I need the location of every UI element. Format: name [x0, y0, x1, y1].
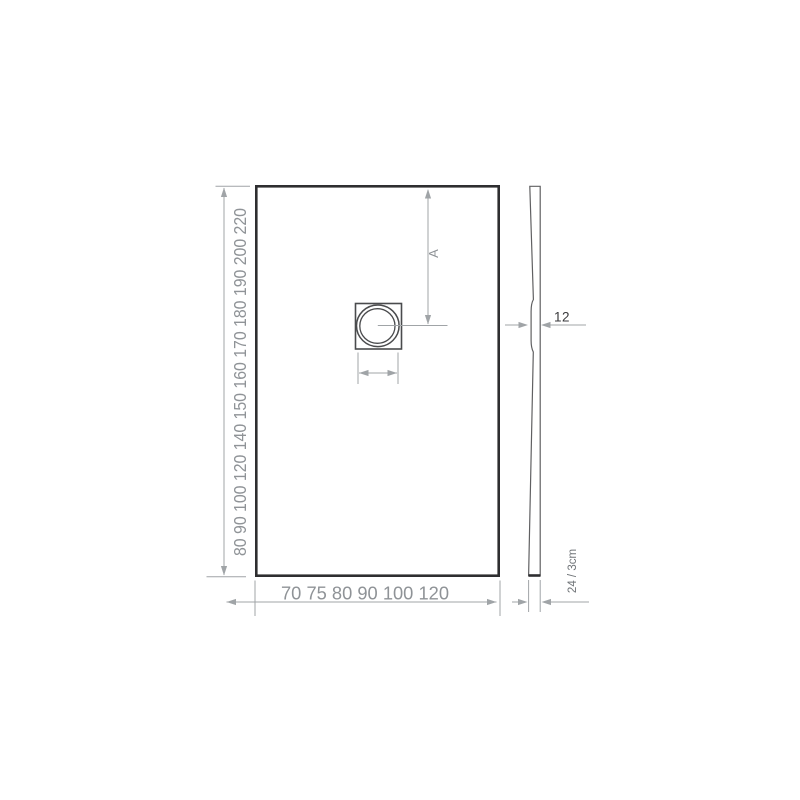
tray-outline	[256, 186, 498, 575]
shower-tray-dimension-diagram: 80 90 100 120 140 150 160 170 180 190 20…	[0, 0, 800, 800]
base-height-dimension: 24 / 3cm	[512, 549, 589, 612]
arrow-right	[487, 599, 497, 605]
drain-offset-label: A	[426, 249, 441, 258]
technical-drawing-canvas: 80 90 100 120 140 150 160 170 180 190 20…	[0, 0, 800, 800]
plan-view: 80 90 100 120 140 150 160 170 180 190 20…	[207, 186, 501, 616]
thickness-label: 12	[554, 310, 570, 325]
arrow-down	[221, 566, 227, 576]
width-values-label: 70 75 80 90 100 120	[281, 584, 449, 604]
base-height-label: 24 / 3cm	[567, 549, 579, 593]
thickness-dimension: 12	[505, 310, 586, 329]
arrow-up	[221, 188, 227, 198]
length-values-label: 80 90 100 120 140 150 160 170 180 190 20…	[230, 208, 250, 556]
arrow-left-pointing	[541, 322, 551, 328]
width-dimension: 70 75 80 90 100 120	[227, 581, 501, 617]
side-view: 12 24 / 3cm	[505, 186, 589, 612]
tray-profile	[529, 186, 541, 576]
arrow-right-pointing	[519, 322, 529, 328]
arrow-right-pointing	[518, 599, 528, 605]
arrow-left	[227, 599, 237, 605]
arrow-left-pointing	[542, 599, 552, 605]
length-dimension: 80 90 100 120 140 150 160 170 180 190 20…	[207, 186, 251, 577]
